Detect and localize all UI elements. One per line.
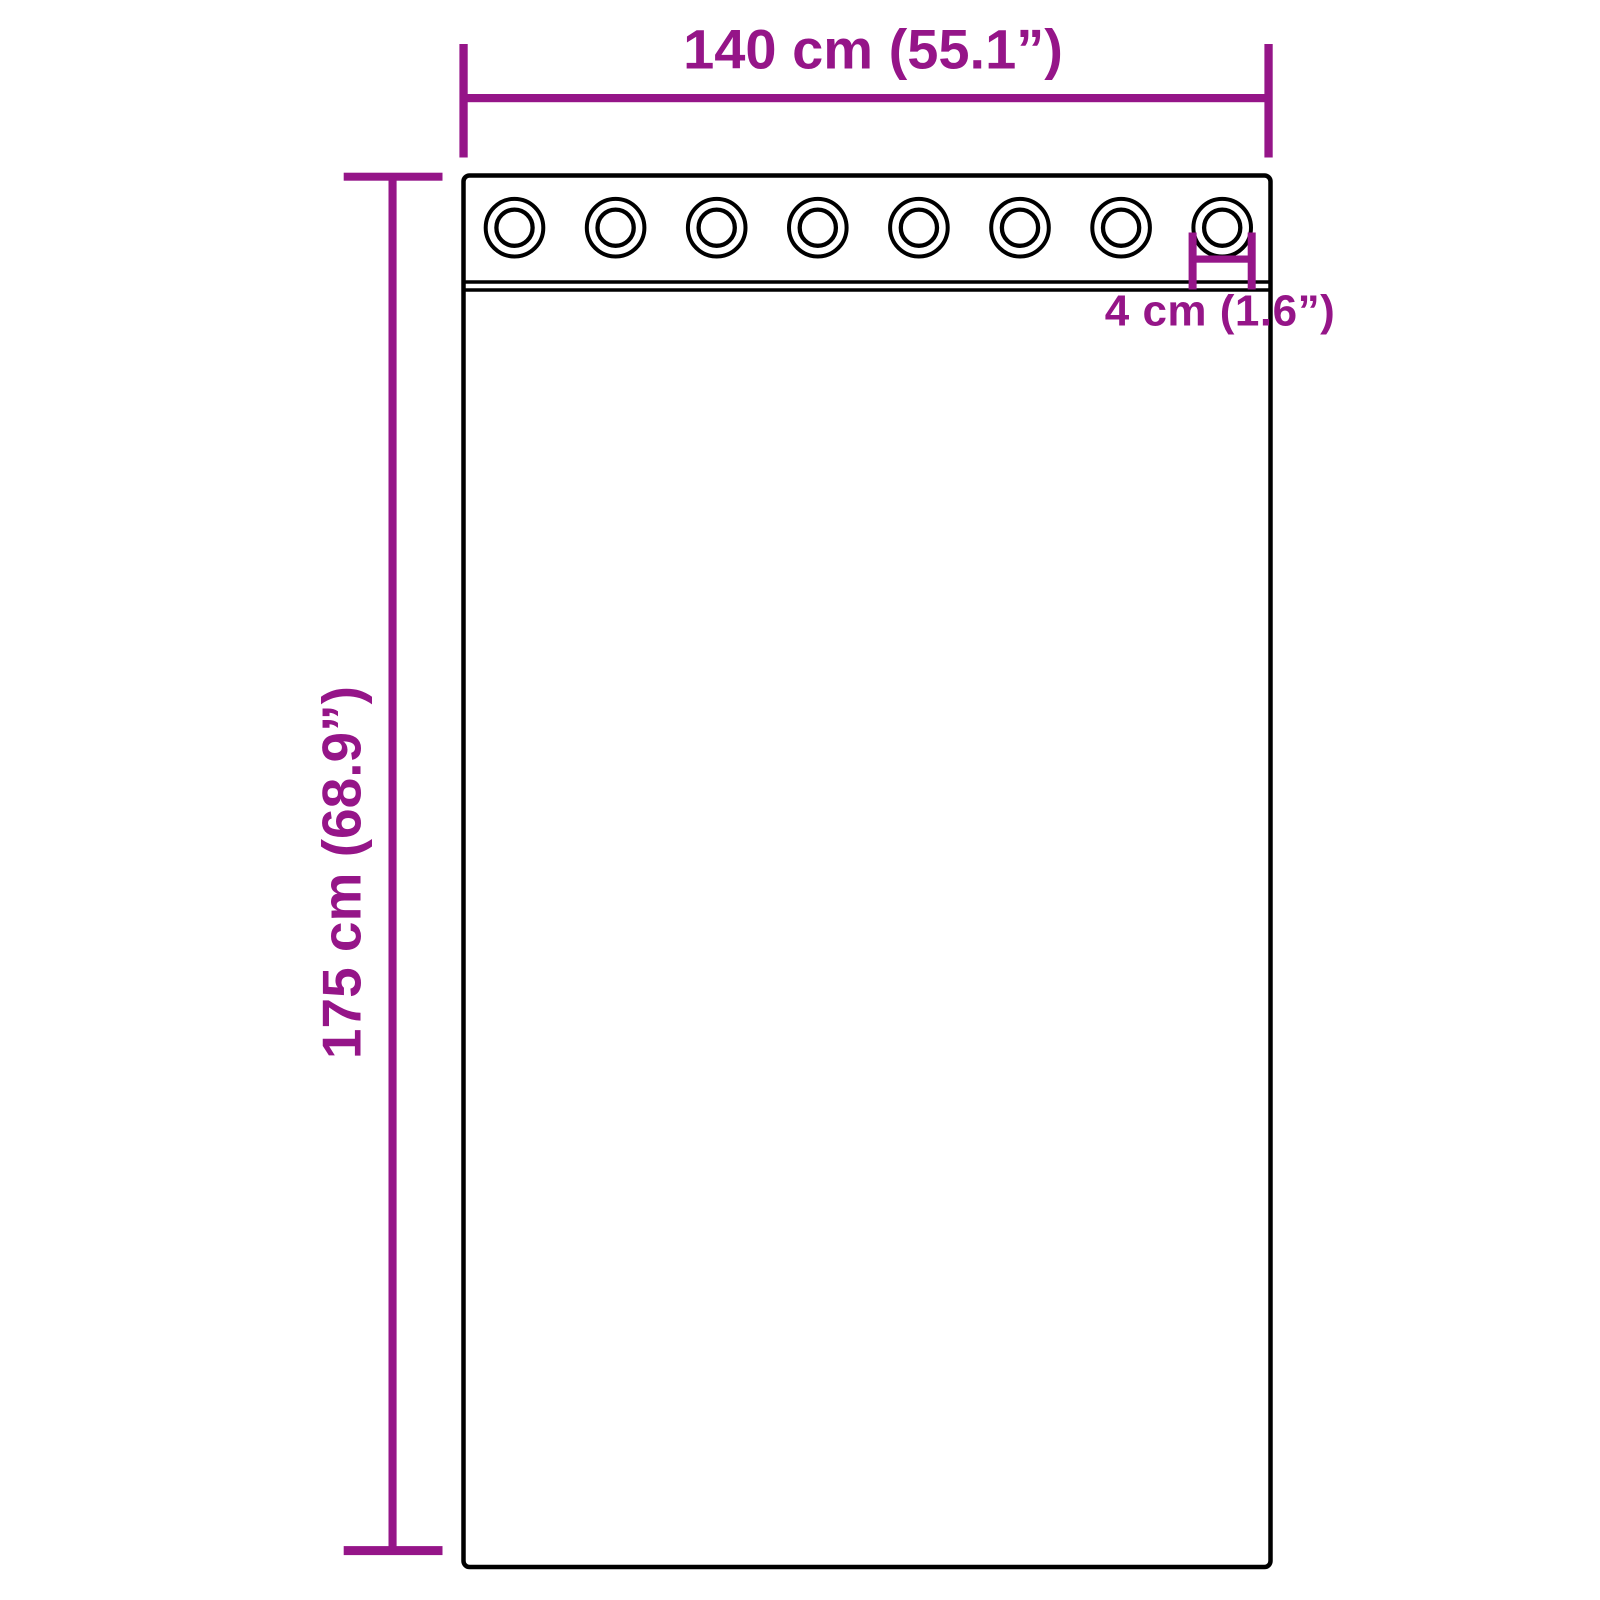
svg-text:140 cm (55.1”): 140 cm (55.1”) (683, 18, 1063, 81)
svg-text:175 cm (68.9”): 175 cm (68.9”) (310, 686, 372, 1059)
svg-text:4 cm (1.6”): 4 cm (1.6”) (1105, 287, 1335, 336)
